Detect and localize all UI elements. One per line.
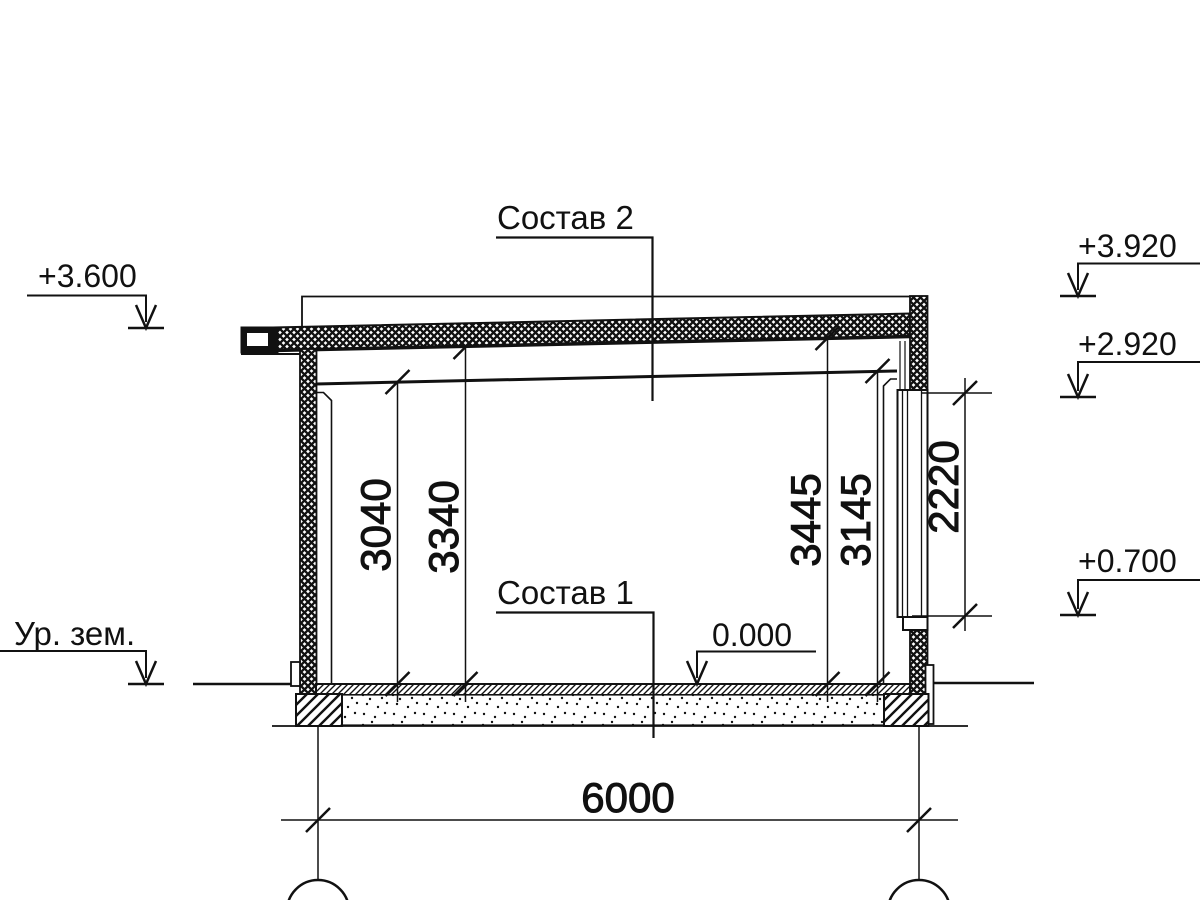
concrete-underlay (342, 695, 884, 725)
foundation-left (296, 694, 342, 726)
dim-text-2220: 2220 (920, 440, 967, 533)
right-parapet-wall (910, 296, 928, 390)
elevation-leader (0, 651, 146, 678)
elevation-text-sill: +0.700 (1078, 543, 1177, 579)
dim-text-3340: 3340 (420, 480, 467, 573)
elevation-leader (27, 296, 146, 323)
section-drawing: 3040 3340 3445 3145 2220 6000 +3.600 Ур.… (0, 0, 1200, 900)
horizontal-dimension-6000: 6000 (281, 774, 958, 832)
callout-text-floor-composition: Состав 1 (497, 574, 634, 611)
elevation-leader (697, 652, 816, 679)
section-drawing-canvas: 3040 3340 3445 3145 2220 6000 +3.600 Ур.… (0, 0, 1200, 900)
left-wall (300, 349, 317, 694)
floor-and-foundation (272, 684, 968, 726)
callout-text-roof-composition: Состав 2 (497, 199, 634, 236)
dim-text-6000: 6000 (581, 774, 674, 821)
eave-gutter-cavity (247, 333, 268, 346)
ground-level-text: Ур. зем. (14, 615, 135, 652)
dim-text-3445: 3445 (782, 473, 829, 566)
composition-callouts: Состав 2 Состав 1 (496, 199, 654, 738)
elevation-text-window-head: +2.920 (1078, 326, 1177, 362)
elevation-leader (1078, 362, 1200, 391)
ceiling-corner-panel-left (316, 393, 332, 685)
elevation-text-floor: 0.000 (712, 617, 792, 653)
elevation-text-parapet: +3.920 (1078, 228, 1177, 264)
axis-bubble-right (888, 880, 950, 900)
window-sill (903, 617, 928, 630)
ceiling-corner-panel-right (884, 379, 898, 684)
elevation-text-roof-eave: +3.600 (38, 258, 137, 294)
elevation-leader (1078, 580, 1200, 609)
left-plinth (291, 662, 300, 686)
dim-text-3145: 3145 (832, 473, 879, 566)
dim-text-3040: 3040 (352, 478, 399, 571)
foundation-right (884, 694, 929, 726)
elevation-leader (1078, 264, 1200, 291)
axis-bubble-left (287, 880, 349, 900)
roof-assembly (241, 297, 927, 355)
